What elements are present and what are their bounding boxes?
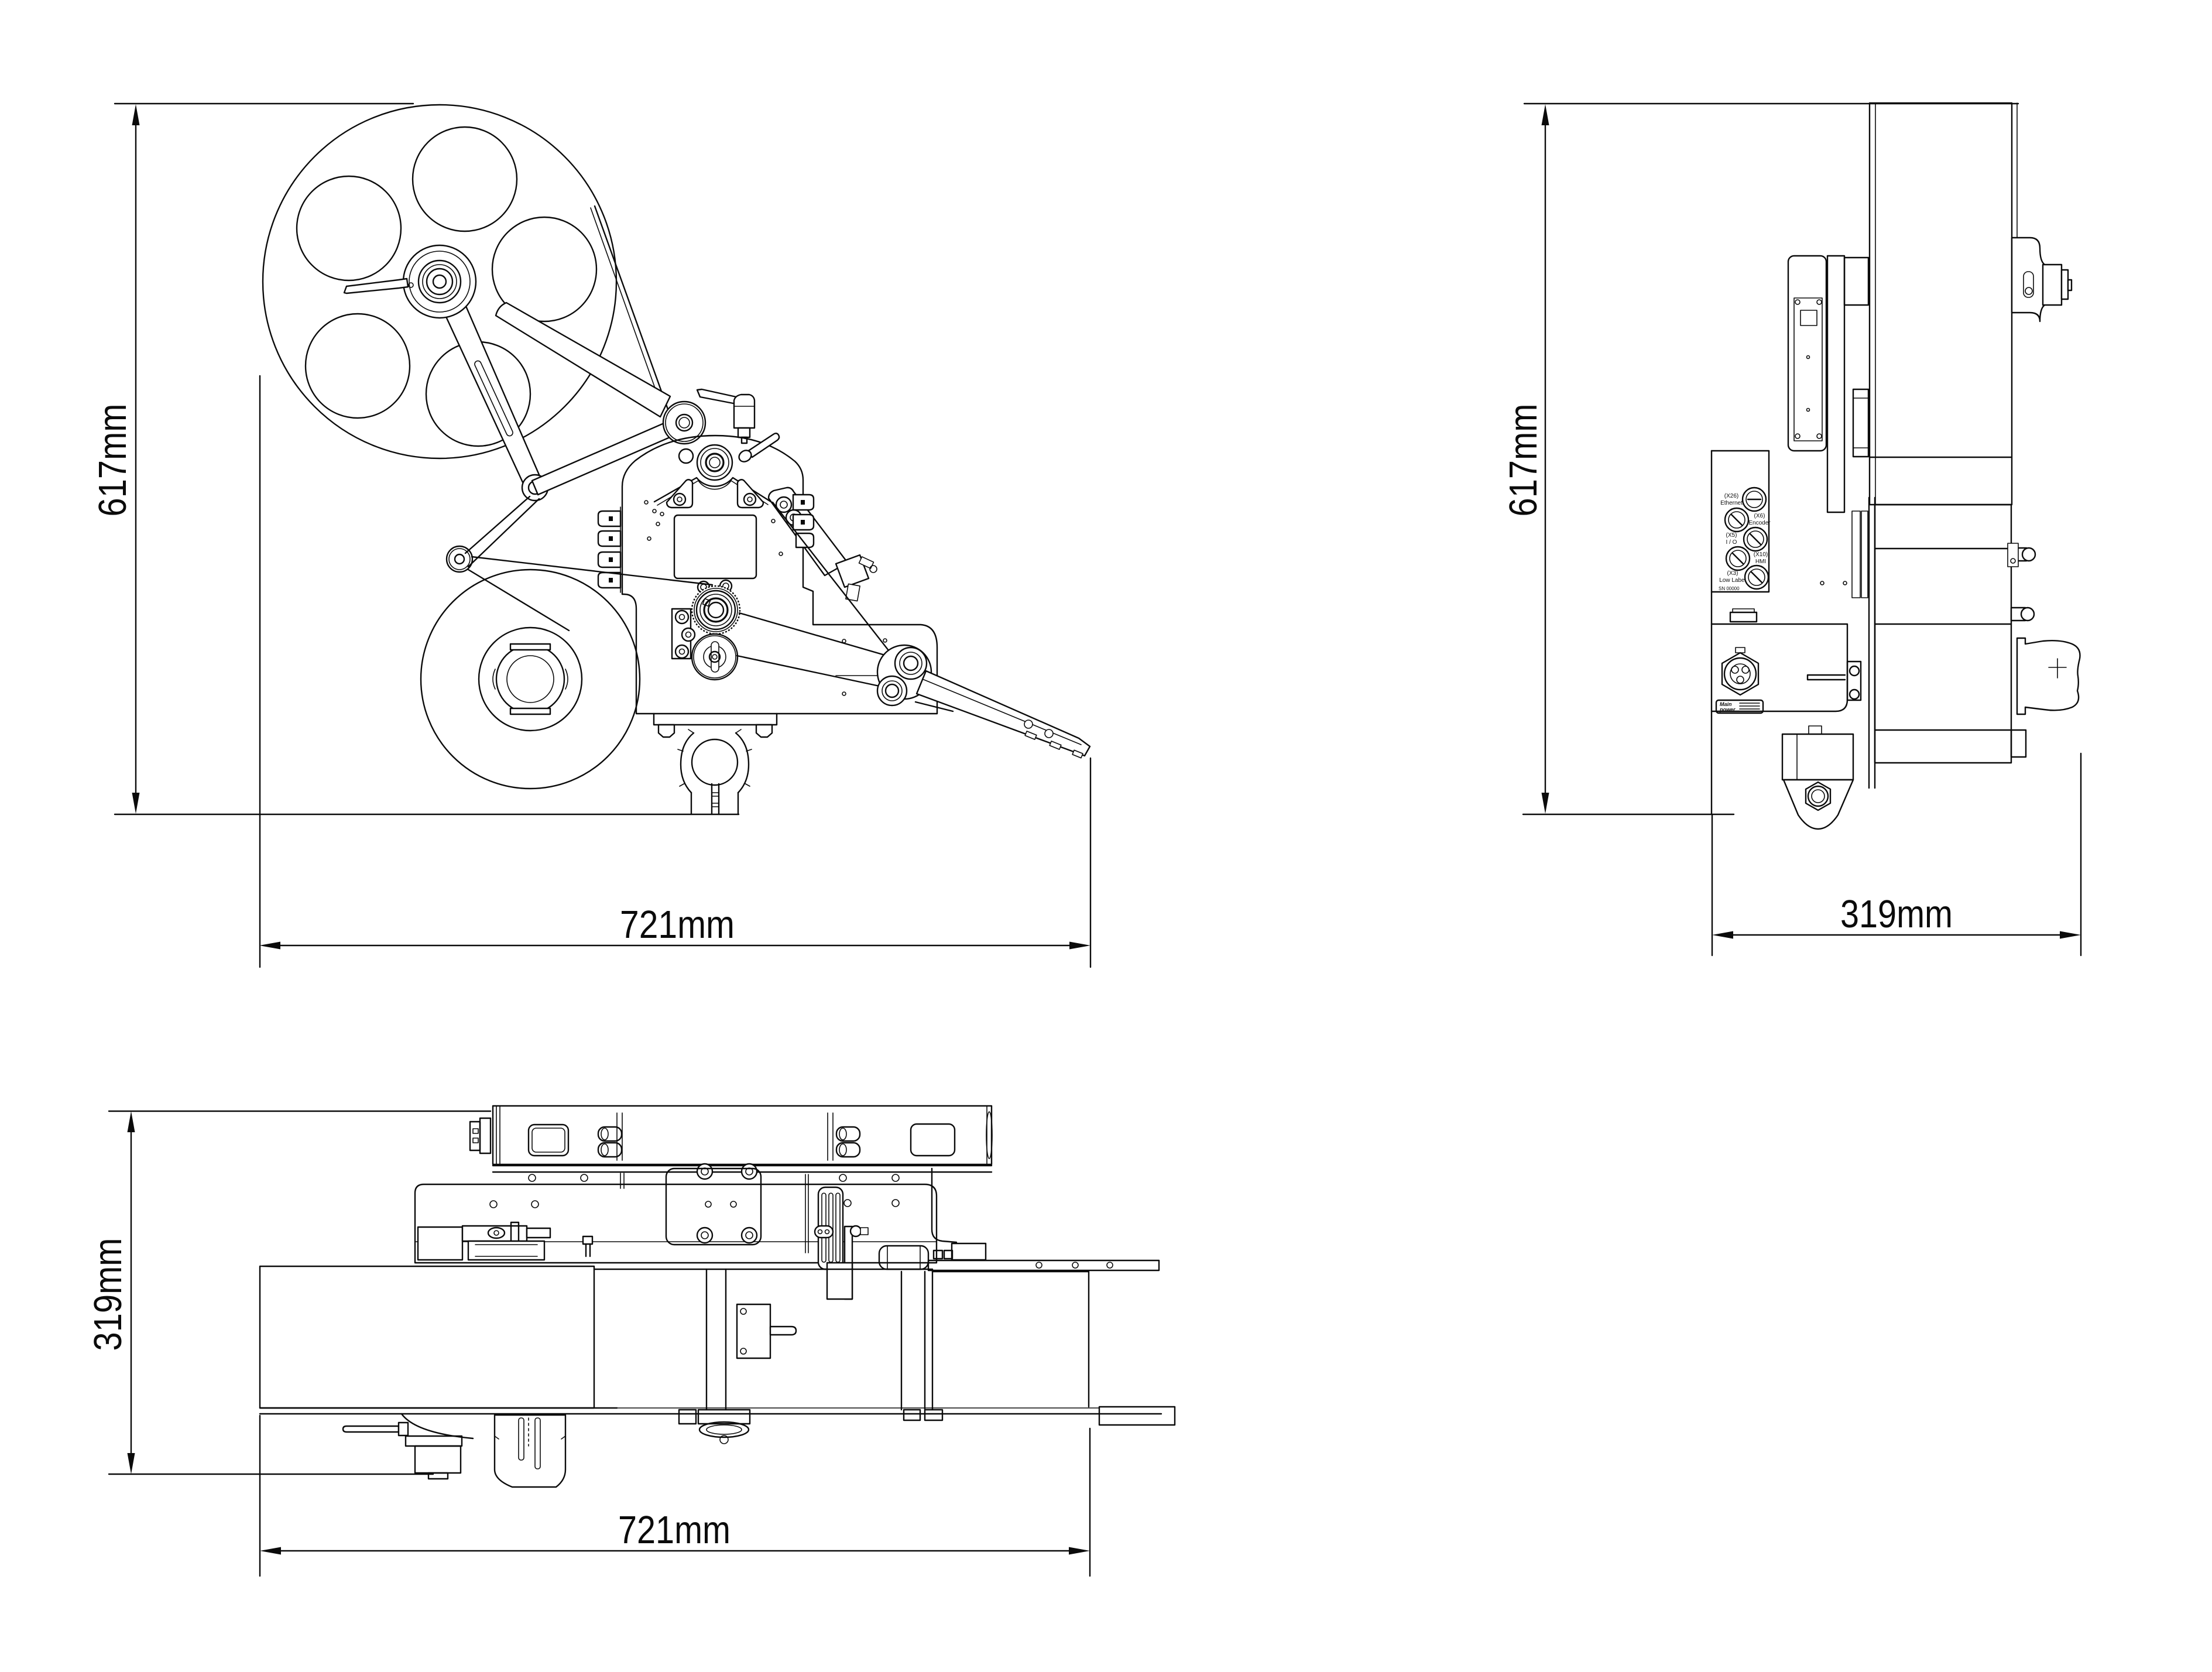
svg-text:HMI: HMI xyxy=(1755,559,1766,565)
svg-text:(X26): (X26) xyxy=(1724,493,1738,499)
svg-text:Encoder: Encoder xyxy=(1748,520,1771,526)
svg-text:617mm: 617mm xyxy=(1501,404,1545,517)
svg-text:Low Label: Low Label xyxy=(1719,577,1746,584)
svg-text:(X3): (X3) xyxy=(1727,570,1738,577)
svg-text:721mm: 721mm xyxy=(618,1508,731,1552)
svg-text:721mm: 721mm xyxy=(620,903,735,947)
svg-text:(X5): (X5) xyxy=(1726,532,1737,539)
svg-text:(X6): (X6) xyxy=(1754,513,1765,519)
svg-text:617mm: 617mm xyxy=(91,404,135,517)
svg-text:power: power xyxy=(1719,707,1736,712)
svg-text:Ethernet: Ethernet xyxy=(1720,500,1743,506)
svg-text:I / O: I / O xyxy=(1726,539,1737,546)
svg-text:319mm: 319mm xyxy=(1840,892,1953,936)
svg-text:(X10): (X10) xyxy=(1754,551,1768,558)
svg-text:319mm: 319mm xyxy=(86,1238,130,1351)
svg-text:SN 00000: SN 00000 xyxy=(1719,586,1740,591)
